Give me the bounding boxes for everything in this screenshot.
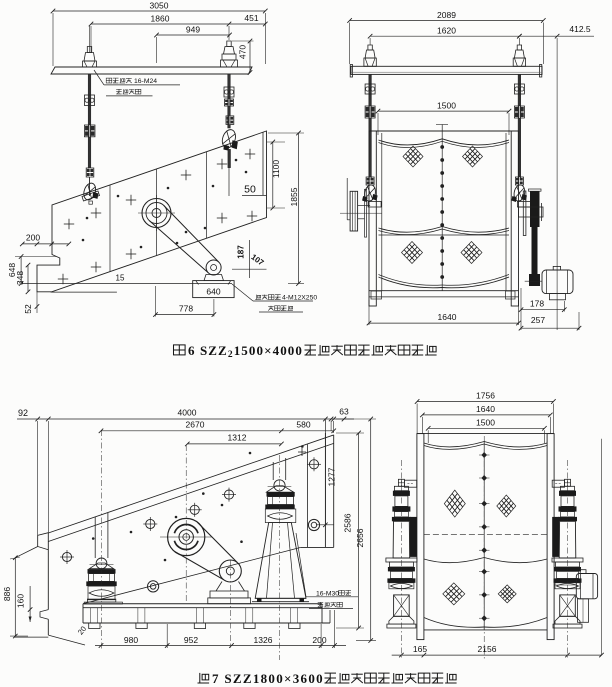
svg-text:1640: 1640 [438, 312, 457, 322]
svg-text:20: 20 [76, 624, 88, 636]
svg-text:980: 980 [124, 635, 138, 645]
svg-text:6 SZZ21500×4000: 6 SZZ21500×4000 [188, 343, 303, 360]
svg-text:3050: 3050 [150, 1, 169, 11]
svg-text:1855: 1855 [289, 187, 299, 206]
svg-text:52: 52 [23, 304, 33, 314]
svg-text:92: 92 [18, 408, 28, 418]
svg-text:1312: 1312 [228, 432, 247, 442]
svg-text:1620: 1620 [437, 26, 456, 36]
svg-text:16-M24: 16-M24 [134, 78, 157, 85]
svg-text:348: 348 [15, 271, 25, 285]
svg-text:2656: 2656 [355, 528, 365, 547]
svg-text:1756: 1756 [476, 391, 495, 401]
svg-text:200: 200 [26, 233, 40, 243]
svg-text:2089: 2089 [437, 10, 456, 20]
svg-text:16-M30: 16-M30 [316, 590, 339, 597]
svg-text:412.5: 412.5 [569, 24, 591, 34]
svg-text:1277: 1277 [327, 467, 337, 486]
svg-text:2670: 2670 [186, 419, 205, 429]
svg-text:1500: 1500 [437, 101, 456, 111]
svg-text:470: 470 [238, 45, 248, 59]
svg-text:15: 15 [116, 274, 125, 283]
svg-text:4000: 4000 [178, 408, 197, 418]
svg-text:580: 580 [296, 419, 310, 429]
svg-text:952: 952 [184, 635, 198, 645]
svg-text:640: 640 [206, 287, 220, 297]
svg-text:165: 165 [413, 644, 427, 654]
svg-text:187: 187 [237, 245, 246, 259]
svg-text:178: 178 [530, 299, 544, 309]
svg-text:1100: 1100 [271, 160, 281, 179]
svg-text:886: 886 [2, 587, 12, 601]
svg-text:1640: 1640 [476, 404, 495, 414]
svg-text:7 SZZ1800×3600: 7 SZZ1800×3600 [212, 671, 324, 686]
svg-text:949: 949 [186, 25, 200, 35]
svg-text:107: 107 [249, 252, 266, 267]
svg-text:4-M12X250: 4-M12X250 [282, 295, 317, 302]
svg-text:2586: 2586 [343, 513, 353, 532]
svg-text:50: 50 [244, 184, 256, 196]
svg-text:778: 778 [179, 304, 193, 314]
svg-text:1500: 1500 [476, 417, 495, 427]
svg-text:451: 451 [244, 13, 258, 23]
svg-text:200: 200 [312, 635, 326, 645]
svg-text:63: 63 [339, 407, 349, 417]
svg-text:160: 160 [16, 594, 26, 608]
svg-text:257: 257 [531, 315, 545, 325]
svg-text:2156: 2156 [478, 644, 497, 654]
svg-text:1326: 1326 [254, 635, 273, 645]
svg-text:1860: 1860 [151, 14, 170, 24]
